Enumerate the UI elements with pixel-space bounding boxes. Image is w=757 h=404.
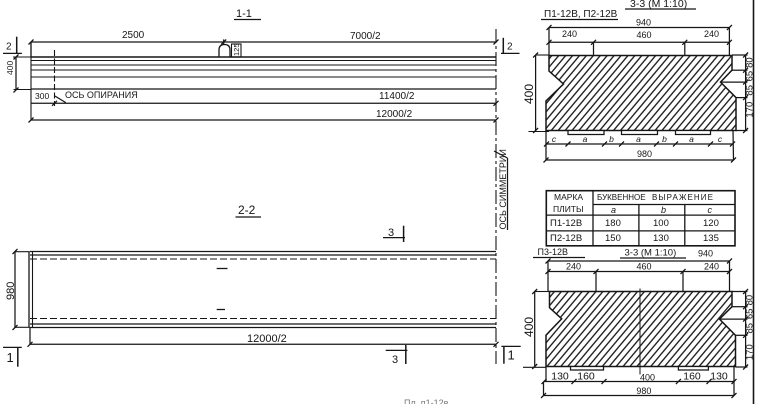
- svg-text:12000/2: 12000/2: [247, 333, 287, 345]
- svg-text:125: 125: [232, 43, 241, 56]
- svg-text:1-1: 1-1: [236, 8, 252, 20]
- svg-text:11400/2: 11400/2: [379, 91, 415, 102]
- svg-text:2500: 2500: [122, 30, 145, 41]
- svg-text:ОСЬ СИММЕТРИИ: ОСЬ СИММЕТРИИ: [498, 149, 508, 229]
- svg-text:160: 160: [683, 371, 701, 383]
- svg-text:980: 980: [636, 386, 651, 396]
- svg-text:a: a: [689, 134, 694, 144]
- svg-text:1: 1: [7, 350, 14, 365]
- svg-text:240: 240: [566, 262, 581, 272]
- svg-text:400: 400: [522, 84, 536, 104]
- svg-text:П3-12В: П3-12В: [538, 247, 569, 257]
- svg-text:b: b: [609, 134, 614, 144]
- svg-text:400: 400: [522, 317, 536, 337]
- svg-text:МАРКА: МАРКА: [554, 192, 583, 202]
- svg-text:980: 980: [637, 149, 652, 159]
- svg-text:180: 180: [605, 218, 621, 229]
- svg-text:940: 940: [698, 249, 713, 259]
- svg-text:b: b: [661, 205, 666, 215]
- svg-text:100: 100: [653, 218, 669, 229]
- svg-text:Пл. п1-12в: Пл. п1-12в: [404, 398, 449, 404]
- svg-text:120: 120: [703, 218, 719, 229]
- svg-text:П2-12В: П2-12В: [550, 233, 582, 244]
- svg-text:a: a: [611, 205, 616, 215]
- svg-text:1: 1: [508, 348, 515, 363]
- svg-text:240: 240: [704, 262, 719, 272]
- svg-text:400: 400: [5, 61, 15, 75]
- svg-text:460: 460: [637, 30, 652, 40]
- svg-text:400: 400: [640, 373, 655, 383]
- svg-text:b: b: [662, 134, 667, 144]
- svg-text:7000/2: 7000/2: [350, 31, 381, 42]
- svg-text:300: 300: [35, 91, 49, 101]
- svg-text:3-3 (М 1:10): 3-3 (М 1:10): [625, 248, 677, 259]
- svg-text:2: 2: [507, 42, 513, 53]
- svg-text:160: 160: [577, 371, 595, 383]
- svg-text:240: 240: [704, 29, 719, 39]
- svg-text:П1-12В, П2-12В: П1-12В, П2-12В: [544, 9, 618, 20]
- svg-text:940: 940: [636, 18, 651, 28]
- svg-text:ОСЬ ОПИРАНИЯ: ОСЬ ОПИРАНИЯ: [65, 90, 138, 100]
- svg-text:2: 2: [6, 42, 12, 53]
- svg-text:a: a: [636, 134, 641, 144]
- svg-text:150: 150: [605, 233, 621, 244]
- svg-text:БУКВЕННОЕ: БУКВЕННОЕ: [597, 193, 646, 202]
- svg-text:130: 130: [710, 371, 728, 383]
- svg-text:460: 460: [637, 262, 652, 272]
- svg-text:3: 3: [392, 354, 398, 366]
- svg-text:130: 130: [653, 233, 669, 244]
- svg-text:П1-12В: П1-12В: [550, 218, 582, 229]
- svg-text:135: 135: [703, 233, 719, 244]
- svg-text:ПЛИТЫ: ПЛИТЫ: [553, 204, 584, 214]
- svg-text:240: 240: [562, 29, 577, 39]
- svg-text:ВЫРАЖЕНИЕ: ВЫРАЖЕНИЕ: [652, 193, 714, 202]
- svg-text:12000/2: 12000/2: [376, 109, 413, 120]
- svg-text:980: 980: [5, 282, 17, 300]
- svg-text:a: a: [583, 134, 588, 144]
- svg-text:c: c: [708, 205, 713, 215]
- svg-text:2-2: 2-2: [238, 203, 256, 217]
- svg-text:130: 130: [551, 371, 569, 383]
